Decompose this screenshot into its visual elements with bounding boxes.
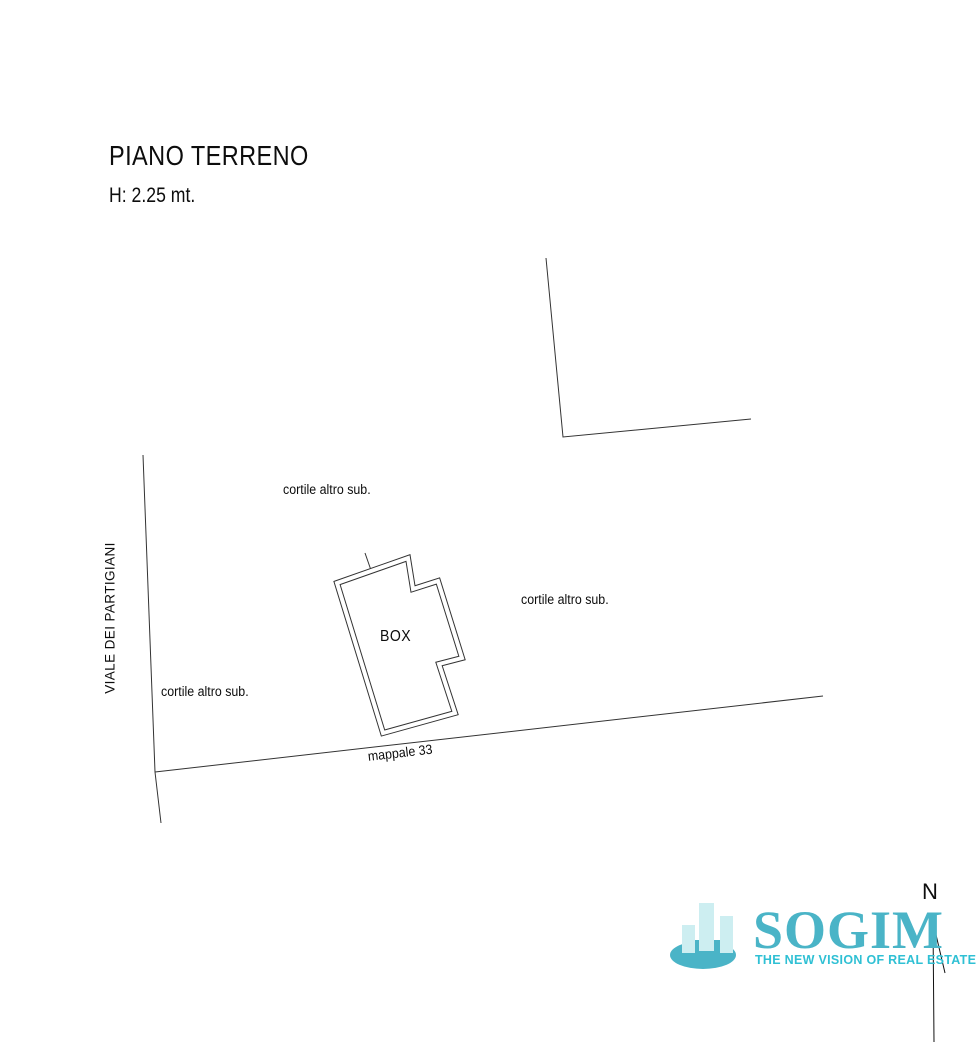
building-room-label: BOX	[380, 628, 411, 646]
sogim-logo-buildings-icon	[668, 896, 740, 974]
courtyard-label-top: cortile altro sub.	[283, 482, 371, 497]
boundary-line-parcel	[155, 696, 823, 772]
floor-plan-page: PIANO TERRENO H: 2.25 mt. VIALE DEI PART…	[0, 0, 978, 1047]
logo-building-bar-right	[720, 916, 733, 953]
boundary-line-upper-right	[546, 258, 751, 437]
courtyard-label-right: cortile altro sub.	[521, 592, 609, 607]
street-name-label: VIALE DEI PARTIGIANI	[103, 542, 118, 694]
sogim-logo-wordmark: SOGIM	[753, 903, 944, 957]
courtyard-label-left: cortile altro sub.	[161, 684, 249, 699]
floor-plan-drawing	[0, 0, 978, 1047]
sogim-logo-tagline: THE NEW VISION OF REAL ESTATE	[755, 953, 976, 967]
boundary-line-street	[143, 455, 161, 823]
logo-building-bar-tall	[699, 903, 714, 951]
logo-building-bar-left	[682, 925, 695, 953]
